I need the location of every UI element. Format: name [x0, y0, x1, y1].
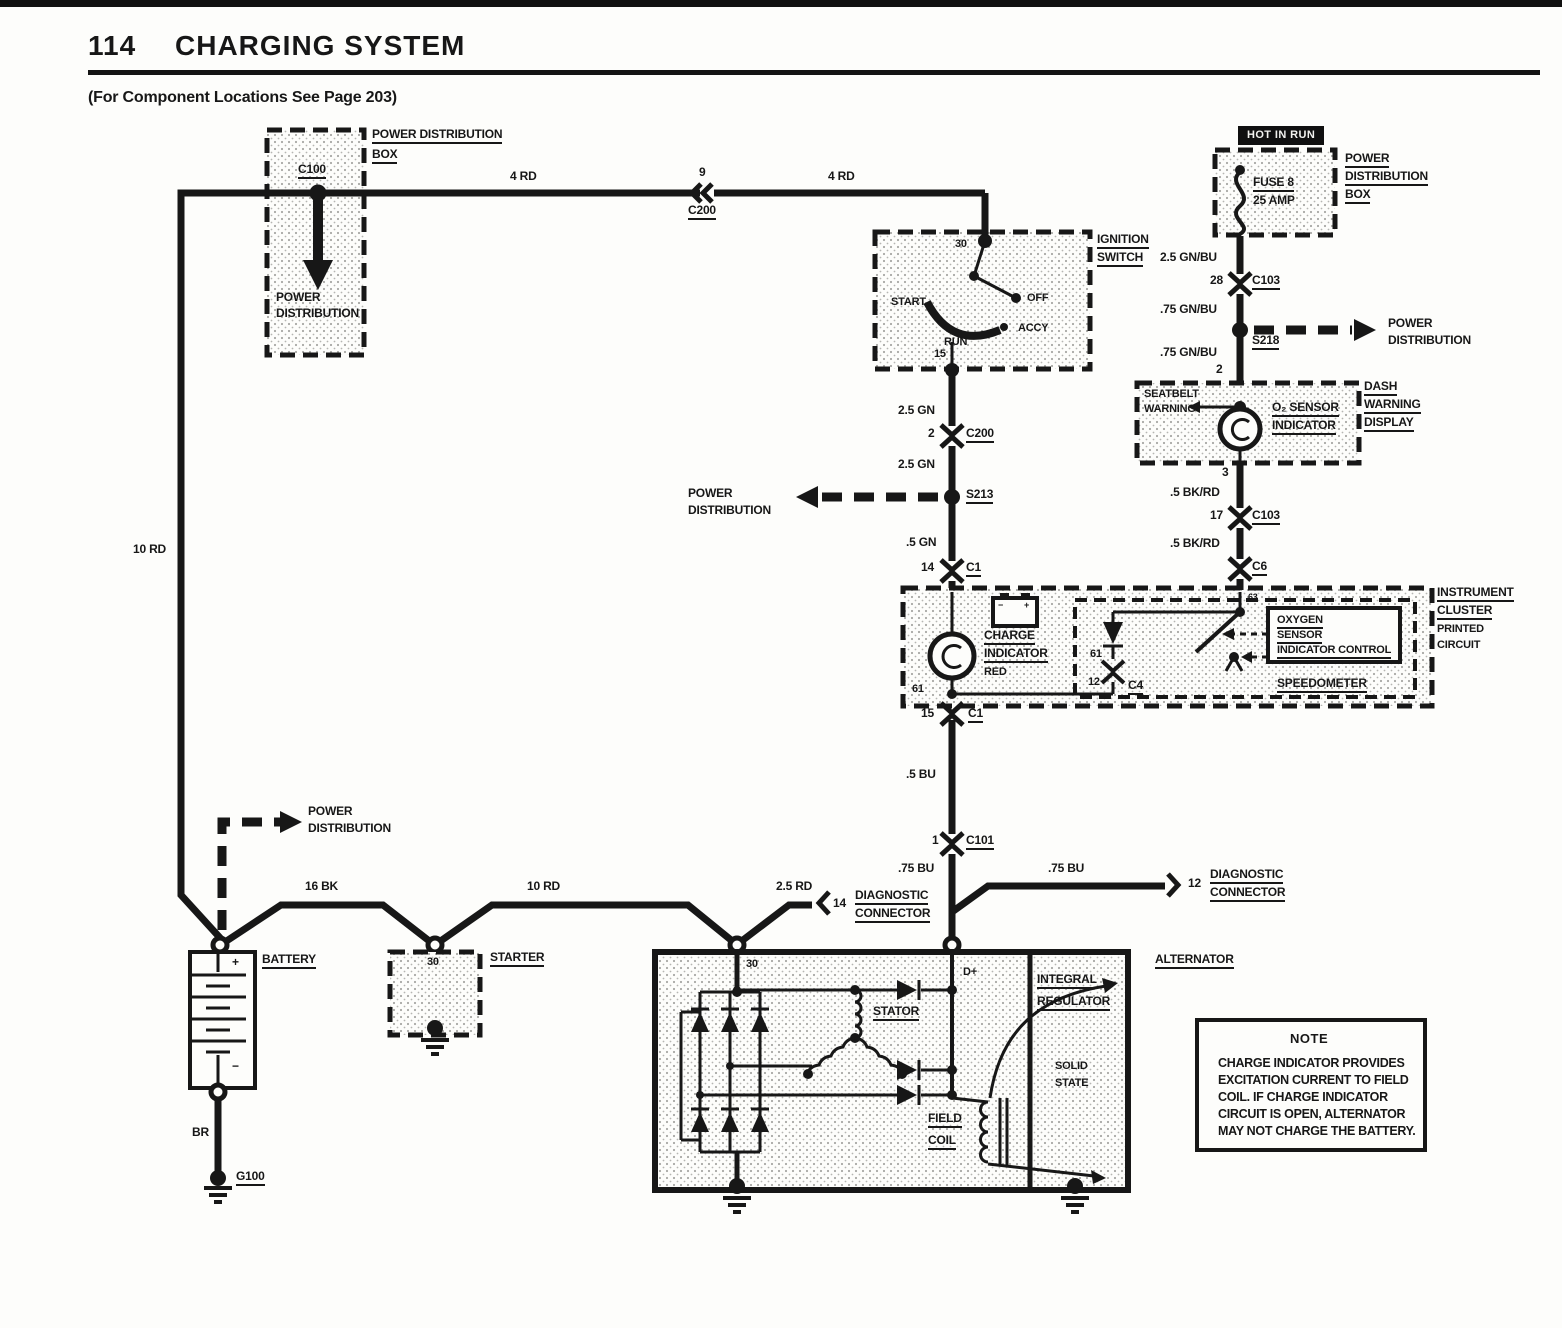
note-line-3: COIL. IF CHARGE INDICATOR [1218, 1090, 1388, 1104]
dash-display-label-2: WARNING [1364, 398, 1421, 414]
oxygen-control-label-2: SENSOR [1277, 629, 1322, 644]
solid-state-label-1: SOLID [1055, 1060, 1088, 1072]
wire-cluster-to-alternator [941, 703, 1178, 941]
wire-10rd-left: 10 RD [133, 543, 166, 556]
display-pin-2: 2 [1216, 363, 1222, 376]
connector-c1-top: C1 [966, 561, 981, 577]
diag-left-pin-14: 14 [833, 897, 846, 910]
wire-25rd: 2.5 RD [776, 880, 812, 893]
regulator-label-1: INTEGRAL [1037, 973, 1097, 989]
wire-br: BR [192, 1126, 209, 1139]
c4-pin-12: 12 [1088, 676, 1100, 688]
pd-battery-arrow-label-2: DISTRIBUTION [308, 822, 391, 835]
pd-left-arrow-label-2: DISTRIBUTION [688, 504, 771, 517]
note-line-2: EXCITATION CURRENT TO FIELD [1218, 1073, 1409, 1087]
connector-c103-top: C103 [1252, 274, 1280, 290]
pd-battery-arrow-label-1: POWER [308, 805, 352, 818]
oxygen-control-label-3: INDICATOR CONTROL [1277, 644, 1391, 659]
battery-plus: + [232, 956, 239, 969]
cluster-pin-61: 61 [912, 683, 924, 695]
wire-5bu: .5 BU [906, 768, 936, 781]
stator-label: STATOR [873, 1005, 919, 1021]
diag-left-label-2: CONNECTOR [855, 907, 930, 923]
speedo-pin-61: 61 [1090, 648, 1102, 660]
pdb-left-label-2: BOX [372, 148, 397, 164]
wire-4rd-right: 4 RD [828, 170, 855, 183]
c101-pin-1: 1 [932, 834, 938, 847]
cluster-label-2: CLUSTER [1437, 604, 1492, 620]
starter-label: STARTER [490, 951, 544, 967]
pdb-right-label-1: POWER [1345, 152, 1389, 168]
wire-10rd-bottom: 10 RD [527, 880, 560, 893]
cluster-label-3: PRINTED [1437, 623, 1484, 635]
charge-indicator-label-1: CHARGE [984, 629, 1035, 645]
ignition-pin-30: 30 [955, 238, 967, 250]
ignition-start: START [891, 296, 926, 308]
cluster-battery-plus: + [1024, 600, 1029, 610]
wire-25gn-2: 2.5 GN [898, 458, 935, 471]
pdb-left-arrow-label-1: POWER [276, 291, 320, 304]
c103-pin-17: 17 [1210, 509, 1223, 522]
cluster-label-4: CIRCUIT [1437, 639, 1480, 651]
ignition-label-2: SWITCH [1097, 251, 1143, 267]
charge-indicator-red: RED [984, 666, 1007, 678]
connector-c200-top: C200 [688, 204, 716, 220]
o2-sensor-label-2: INDICATOR [1272, 419, 1336, 435]
ground-g100: G100 [236, 1170, 265, 1186]
starter-pin-30: 30 [427, 956, 439, 968]
pd-right-arrow-label-1: POWER [1388, 317, 1432, 330]
pd-left-arrow-label-1: POWER [688, 487, 732, 500]
field-coil-label-2: COIL [928, 1134, 956, 1150]
pdb-right-label-3: BOX [1345, 188, 1370, 204]
c200-pin-9: 9 [699, 166, 705, 179]
oxygen-control-label-1: OXYGEN [1277, 614, 1323, 629]
solid-state-label-2: STATE [1055, 1077, 1088, 1089]
fuse-amp-label: 25 AMP [1253, 194, 1295, 207]
note-line-1: CHARGE INDICATOR PROVIDES [1218, 1056, 1405, 1070]
wire-25gnbu: 2.5 GN/BU [1160, 251, 1217, 264]
wire-5gn: .5 GN [906, 536, 936, 549]
field-coil-label-1: FIELD [928, 1112, 962, 1128]
wire-5bkrd-1: .5 BK/RD [1170, 486, 1220, 499]
fuse-8-label: FUSE 8 [1253, 176, 1294, 192]
speedometer-label: SPEEDOMETER [1277, 677, 1367, 693]
battery-symbol [190, 952, 255, 1202]
display-pin-3: 3 [1222, 466, 1228, 479]
note-line-5: MAY NOT CHARGE THE BATTERY. [1218, 1124, 1415, 1138]
c103-pin-28: 28 [1210, 274, 1223, 287]
battery-minus: − [232, 1060, 239, 1073]
c200-mid-pin: 2 [928, 427, 934, 440]
cluster-battery-minus: − [998, 600, 1003, 610]
wire-fuse-to-display [1229, 236, 1376, 383]
ignition-off: OFF [1027, 292, 1048, 304]
ignition-pin-15: 15 [934, 348, 946, 360]
wire-display-to-cluster [1229, 463, 1251, 590]
cluster-pin-63: 63 [1248, 592, 1258, 602]
battery-label: BATTERY [262, 953, 316, 969]
hot-in-run-tag: HOT IN RUN [1238, 126, 1324, 145]
wire-75bu-left: .75 BU [898, 862, 934, 875]
regulator-label-2: REGULATOR [1037, 995, 1110, 1011]
wire-4rd-left: 4 RD [510, 170, 537, 183]
seatbelt-warning-label-2: WARNING [1144, 403, 1196, 415]
cluster-label-1: INSTRUMENT [1437, 586, 1514, 602]
charge-indicator-label-2: INDICATOR [984, 647, 1048, 663]
page-number: 114 [88, 30, 136, 61]
pd-right-arrow-label-2: DISTRIBUTION [1388, 334, 1471, 347]
wire-75gnbu-2: .75 GN/BU [1160, 346, 1217, 359]
o2-sensor-label-1: O₂ SENSOR [1272, 401, 1339, 417]
ignition-run: RUN [944, 336, 967, 348]
dash-display-label-1: DASH [1364, 380, 1397, 396]
connector-c6: C6 [1252, 560, 1267, 576]
seatbelt-warning-label-1: SEATBELT [1144, 388, 1199, 400]
ignition-label-1: IGNITION [1097, 233, 1149, 249]
connector-c1-bottom: C1 [968, 707, 983, 723]
diag-right-pin-12: 12 [1188, 877, 1201, 890]
diag-right-label-2: CONNECTOR [1210, 886, 1285, 902]
wire-75gnbu-1: .75 GN/BU [1160, 303, 1217, 316]
ignition-accy: ACCY [1018, 322, 1048, 334]
splice-s213: S213 [966, 488, 993, 504]
page-subtitle: (For Component Locations See Page 203) [88, 89, 397, 107]
c1-top-pin: 14 [921, 561, 934, 574]
wire-16bk: 16 BK [305, 880, 338, 893]
connector-c103-mid: C103 [1252, 509, 1280, 525]
pdb-right-label-2: DISTRIBUTION [1345, 170, 1428, 186]
c1-bottom-pin: 15 [921, 707, 934, 720]
connector-c200-mid: C200 [966, 427, 994, 443]
pdb-left-arrow-label-2: DISTRIBUTION [276, 307, 359, 320]
wire-75bu-right: .75 BU [1048, 862, 1084, 875]
diag-left-label-1: DIAGNOSTIC [855, 889, 928, 905]
diag-right-label-1: DIAGNOSTIC [1210, 868, 1283, 884]
alternator-pin-30: 30 [746, 958, 758, 970]
splice-s218: S218 [1252, 334, 1279, 350]
wire-ignition-to-cluster [796, 375, 963, 588]
note-title: NOTE [1290, 1032, 1328, 1047]
connector-c100: C100 [298, 163, 326, 179]
note-line-4: CIRCUIT IS OPEN, ALTERNATOR [1218, 1107, 1405, 1121]
pdb-left-label-1: POWER DISTRIBUTION [372, 128, 502, 144]
wire-25gn-1: 2.5 GN [898, 404, 935, 417]
wire-5bkrd-2: .5 BK/RD [1170, 537, 1220, 550]
connector-c4: C4 [1128, 679, 1143, 695]
page-title: CHARGING SYSTEM [175, 30, 465, 61]
dash-display-label-3: DISPLAY [1364, 416, 1414, 432]
alternator-dplus: D+ [963, 966, 977, 978]
connector-c101: C101 [966, 834, 994, 850]
alternator-label: ALTERNATOR [1155, 953, 1234, 969]
wiring-diagram-page: 114 CHARGING SYSTEM (For Component Locat… [0, 0, 1562, 1328]
